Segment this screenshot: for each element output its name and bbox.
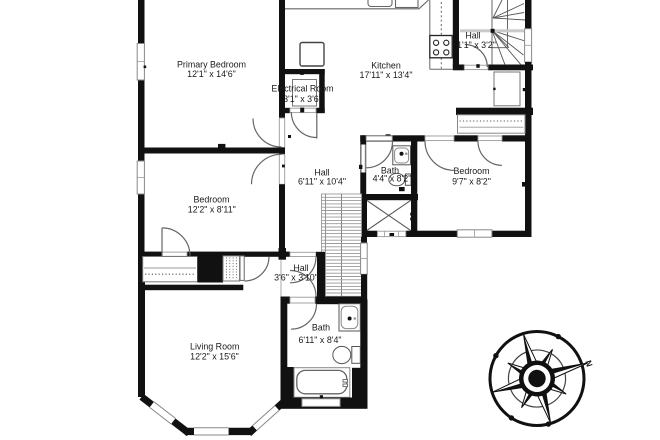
svg-text:3'6" x 3'10": 3'6" x 3'10": [274, 273, 318, 283]
svg-text:3'1" x 3'6": 3'1" x 3'6": [283, 94, 322, 104]
svg-text:9'7" x 8'2": 9'7" x 8'2": [452, 176, 491, 186]
svg-text:Electrical Room: Electrical Room: [271, 84, 333, 94]
svg-text:Bath: Bath: [312, 322, 330, 332]
svg-text:Bedroom: Bedroom: [193, 195, 229, 205]
svg-text:Kitchen: Kitchen: [371, 60, 401, 70]
svg-text:Hall: Hall: [293, 263, 308, 273]
svg-text:12'2" x 8'11": 12'2" x 8'11": [188, 205, 236, 215]
svg-text:12'1" x 14'6": 12'1" x 14'6": [187, 69, 236, 79]
svg-text:Bedroom: Bedroom: [453, 166, 489, 176]
svg-text:6'11" x 10'4": 6'11" x 10'4": [298, 177, 346, 187]
svg-text:1'1" x 3'2": 1'1" x 3'2": [457, 40, 496, 50]
svg-text:17'11" x 13'4": 17'11" x 13'4": [360, 70, 413, 80]
svg-text:12'2" x 15'6": 12'2" x 15'6": [190, 352, 239, 362]
svg-text:Living Room: Living Room: [190, 342, 239, 352]
svg-text:4'4" x 8'2": 4'4" x 8'2": [373, 174, 412, 184]
svg-text:6'11" x 8'4": 6'11" x 8'4": [298, 335, 341, 345]
svg-text:Primary Bedroom: Primary Bedroom: [177, 59, 246, 69]
